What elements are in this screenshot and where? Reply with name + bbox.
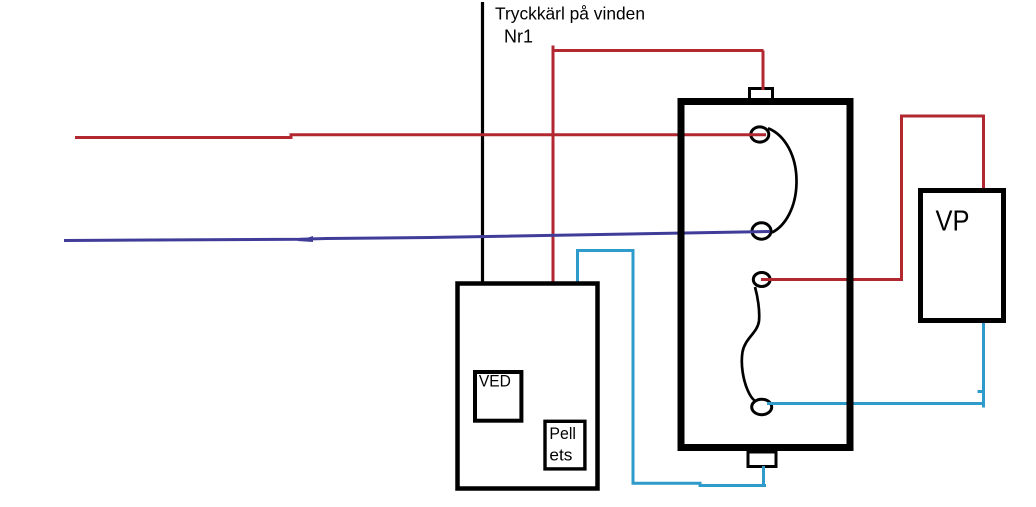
svg-text:VP: VP xyxy=(936,205,970,237)
svg-text:ets: ets xyxy=(549,447,572,465)
svg-text:Nr1: Nr1 xyxy=(504,27,533,47)
svg-text:Tryckkärl på vinden: Tryckkärl på vinden xyxy=(495,4,645,24)
svg-text:VED: VED xyxy=(479,372,511,391)
svg-text:Pell: Pell xyxy=(549,425,576,443)
